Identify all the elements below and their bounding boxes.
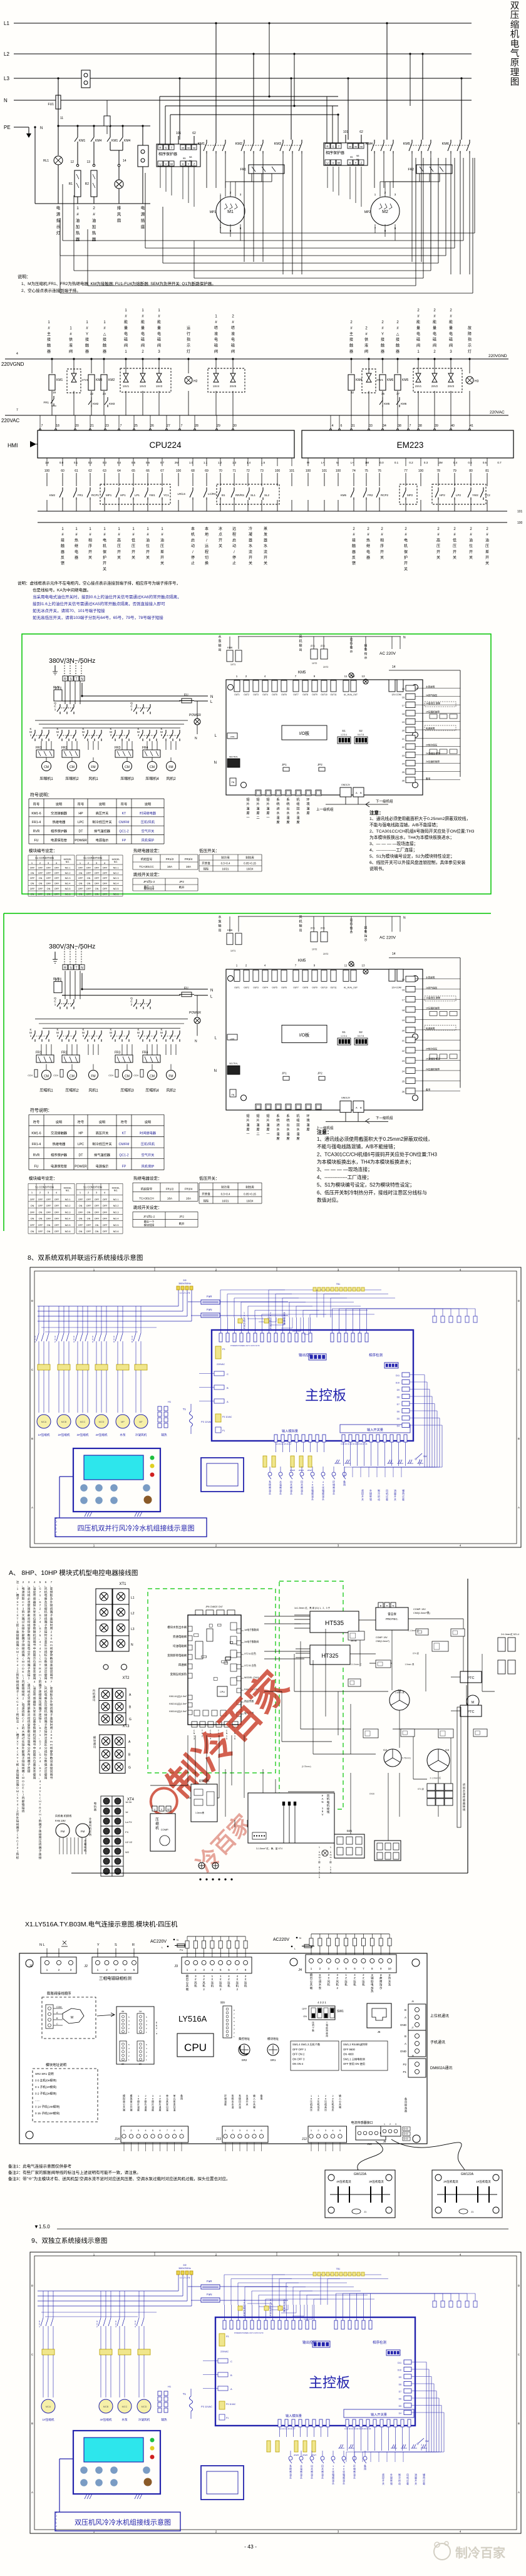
svg-text:4: 4: [16, 352, 18, 356]
svg-text:输出公共端: 输出公共端: [310, 1973, 313, 1990]
svg-text:KT: KT: [122, 812, 126, 816]
svg-text:外接联锁: 外接联锁: [390, 2473, 393, 2485]
svg-text:MP: MP: [121, 1421, 125, 1423]
svg-text:A: A: [230, 2387, 232, 2391]
svg-text:B: B: [360, 791, 362, 794]
svg-text:压缩机3: 压缩机3: [120, 1088, 134, 1093]
svg-text:ON OFF 3: ON OFF 3: [292, 2057, 305, 2060]
svg-text:TB1: TB1: [336, 1283, 341, 1285]
svg-text:KM3: KM3: [274, 142, 281, 146]
svg-text:M: M: [336, 461, 339, 464]
svg-text:100: 100: [306, 469, 311, 473]
svg-text:ON: ON: [87, 1218, 91, 1220]
svg-text:N: N: [214, 1069, 217, 1073]
svg-text:J12: J12: [302, 2137, 307, 2141]
svg-text:1SV3: 1SV3: [156, 385, 163, 388]
svg-text:NO.6: NO.6: [113, 1230, 119, 1233]
svg-text:11: 11: [60, 117, 63, 120]
svg-text:220VAC: 220VAC: [1, 418, 19, 423]
svg-text:RCP1: RCP1: [91, 494, 100, 497]
svg-text:水温感温头: 水温感温头: [300, 2464, 302, 2479]
svg-text:OUT3: OUT3: [253, 987, 259, 989]
svg-text:OFF: OFF: [46, 1211, 51, 1213]
svg-text:29: 29: [217, 424, 220, 428]
svg-text:P3 11VAC: P3 11VAC: [201, 2405, 212, 2408]
svg-text:OFF: OFF: [103, 1211, 108, 1213]
svg-text:OFF: OFF: [30, 1198, 35, 1201]
svg-text:XT2: XT2: [122, 1676, 130, 1680]
svg-text:FR1/2: FR1/2: [166, 858, 174, 861]
svg-text:2YV1: 2YV1: [376, 378, 384, 382]
svg-text:GND: GND: [400, 2050, 407, 2053]
svg-text:HL1: HL1: [43, 159, 49, 163]
svg-text:J5: J5: [411, 2000, 414, 2003]
svg-text:0 15 子机(15#模块): 0 15 子机(15#模块): [35, 2111, 60, 2116]
svg-text:16A: 16A: [167, 865, 173, 868]
svg-text:380V/50Hz: 380V/50Hz: [178, 1282, 191, 1285]
svg-text:NO.6: NO.6: [113, 893, 119, 895]
svg-text:23: 23: [105, 424, 109, 428]
svg-text:FU: FU: [34, 839, 39, 843]
svg-text:制热用: 制热用: [245, 856, 254, 860]
svg-text:压缩机1: 压缩机1: [39, 776, 53, 781]
svg-text:2SV1: 2SV1: [415, 385, 422, 388]
svg-text:220VAC: 220VAC: [220, 2350, 229, 2353]
svg-text:A: A: [31, 2491, 33, 2494]
svg-text:备注1：此电气连接示意图仅供参考: 备注1：此电气连接示意图仅供参考: [8, 2163, 72, 2169]
svg-text:环境感温头: 环境感温头: [353, 2465, 356, 2479]
svg-text:OFF: OFF: [30, 877, 35, 880]
svg-text:OFF: OFF: [95, 1205, 100, 1207]
svg-text:电源保险管: 电源保险管: [51, 1163, 67, 1168]
svg-text:CCH: CCH: [133, 1074, 138, 1077]
svg-text:2#电子膨胀阀: 2#电子膨胀阀: [244, 1640, 259, 1643]
svg-text:21: 21: [90, 424, 94, 428]
svg-text:ON: ON: [31, 1230, 34, 1233]
svg-text:A: A: [405, 2016, 406, 2019]
svg-text:ON: ON: [47, 1224, 51, 1227]
svg-text:机组回水温度: 机组回水温度: [296, 1113, 300, 1141]
svg-text:FaN: FaN: [207, 1308, 212, 1311]
svg-text:2DW5: 2DW5: [294, 2454, 299, 2456]
svg-text:压缩机: 压缩机: [155, 1817, 159, 1831]
svg-text:CM: CM: [44, 766, 49, 769]
svg-text:系统感温头: 系统感温头: [269, 1480, 271, 1495]
svg-text:2#制冷保压: 2#制冷保压: [426, 1047, 438, 1050]
svg-text:27: 27: [167, 424, 170, 428]
svg-text:OUT7: OUT7: [293, 987, 299, 989]
svg-text:2XT2: 2XT2: [323, 666, 328, 668]
svg-text:1#压缩机故障: 1#压缩机故障: [426, 710, 440, 713]
svg-text:0.1: 0.1: [394, 461, 399, 464]
svg-text:D5: D5: [399, 2405, 401, 2407]
svg-text:模块地址说明: 模块地址说明: [46, 2062, 67, 2067]
svg-text:1XT1: 1XT1: [230, 663, 235, 666]
svg-text:TB1: TB1: [336, 2268, 341, 2270]
svg-text:10: 10: [388, 1967, 392, 1970]
svg-text:78: 78: [436, 469, 440, 473]
svg-text:符号: 符号: [121, 1119, 127, 1124]
svg-text:11: 11: [344, 675, 348, 678]
svg-text:98: 98: [189, 155, 192, 158]
svg-text:压缩机3: 压缩机3: [120, 776, 134, 781]
svg-text:NEUTRAL: NEUTRAL: [229, 756, 238, 758]
svg-text:2DW7: 2DW7: [307, 1469, 313, 1472]
svg-text:0.3~0.4: 0.3~0.4: [221, 1193, 230, 1196]
svg-text:POWER: POWER: [75, 839, 87, 843]
svg-text:OFF OFF 1: OFF OFF 1: [292, 2048, 306, 2051]
svg-text:风机2: 风机2: [166, 1088, 176, 1093]
svg-text:XT3: XT3: [122, 1725, 130, 1728]
svg-text:OFF: OFF: [95, 877, 100, 880]
svg-text:模拟量公共端: 模拟量公共端: [123, 2094, 125, 2112]
svg-text:OFF: OFF: [54, 1230, 59, 1233]
svg-text:主控板: 主控板: [309, 2375, 350, 2391]
svg-text:2SV3: 2SV3: [448, 385, 455, 388]
svg-text:单元蒸发出温: 单元蒸发出温: [166, 2094, 168, 2112]
svg-text:ON: ON: [95, 1230, 99, 1233]
svg-text:系统回水温: 系统回水温: [239, 2094, 241, 2109]
svg-text:四压机双并行风冷冷水机组接线示意图: 四压机双并行风冷冷水机组接线示意图: [78, 1524, 195, 1532]
svg-text:B: B: [405, 2035, 406, 2038]
svg-text:OFF: OFF: [78, 866, 83, 869]
svg-text:D9: D9: [399, 2376, 401, 2379]
svg-text:A、 8HP、10HP 模块式机型电控电器接线图: A、 8HP、10HP 模块式机型电控电器接线图: [9, 1569, 138, 1577]
svg-text:20: 20: [75, 424, 79, 428]
svg-text:J6: J6: [378, 2030, 381, 2033]
svg-text:5 6 7 8: 5 6 7 8: [358, 1035, 364, 1037]
svg-text:水泵输出: 水泵输出: [218, 915, 221, 932]
svg-text:XT2 A 红色: XT2 A 红色: [244, 1652, 256, 1655]
svg-text:D8: D8: [397, 1396, 400, 1399]
svg-text:JP1的1-2: JP1的1-2: [143, 880, 155, 884]
svg-text:1#压缩机: 1#压缩机: [38, 1433, 50, 1437]
svg-text:OFF: OFF: [54, 883, 59, 885]
svg-text:ON: ON: [79, 1218, 83, 1220]
svg-text:6、线控开关可以外接风盘连锁控制，具体参见安装: 6、线控开关可以外接风盘连锁控制，具体参见安装: [369, 860, 466, 865]
svg-text:说明: 说明: [56, 1119, 62, 1124]
svg-text:KM5: KM5: [403, 142, 410, 146]
svg-text:35: 35: [381, 392, 385, 395]
svg-text:C3: C3: [445, 1748, 449, 1752]
svg-text:变频压机加热: 变频压机加热: [170, 1672, 187, 1676]
svg-text:101: 101: [176, 132, 182, 135]
svg-text:OFF: OFF: [54, 1211, 59, 1213]
svg-text:POWERN POWERL OUT1 OUT2 OUT3: POWERN POWERL OUT1 OUT2 OUT3: [234, 2332, 264, 2334]
svg-text:95: 95: [350, 155, 353, 158]
svg-text:输出公共端: 输出公共端: [186, 1974, 189, 1992]
svg-text:23: 23: [402, 754, 405, 757]
svg-text:M: M: [71, 2016, 73, 2020]
svg-text:380V/50Hz: 380V/50Hz: [178, 2267, 191, 2270]
svg-text:FR1/2: FR1/2: [166, 1188, 174, 1191]
svg-text:HP2: HP2: [440, 494, 445, 497]
svg-text:OUT9: OUT9: [312, 693, 317, 696]
svg-text:100: 100: [336, 469, 341, 473]
svg-text:21: 21: [402, 1040, 405, 1042]
svg-text:ON: ON: [31, 1218, 34, 1220]
svg-text:不能与强电线路混铺，A/B不能接错；: 不能与强电线路混铺，A/B不能接错；: [369, 822, 440, 828]
svg-text:SW1.4 SW1.3 压机个数: SW1.4 SW1.3 压机个数: [292, 2042, 321, 2047]
svg-text:N: N: [210, 695, 213, 699]
svg-text:CM: CM: [70, 1074, 75, 1078]
svg-text:KM5: KM5: [402, 378, 409, 382]
svg-text:2#制冷保压: 2#制冷保压: [426, 744, 438, 747]
svg-text:冷凝风机: 冷凝风机: [135, 1433, 147, 1437]
svg-text:24: 24: [103, 392, 106, 395]
svg-text:N: N: [195, 737, 197, 740]
svg-text:16/21: 16/21: [222, 868, 230, 871]
svg-text:NO.5: NO.5: [65, 888, 71, 890]
svg-text:说明: 说明: [56, 801, 62, 806]
svg-text:低压开关：: 低压开关：: [199, 1175, 220, 1181]
svg-text:KM1 A1(吕)1.5m²: KM1 A1(吕)1.5m²: [169, 1695, 187, 1698]
svg-text:OFF: OFF: [46, 1205, 51, 1207]
svg-text:如无高低压开关，请将103端子分别与64号，65号，79号，: 如无高低压开关，请将103端子分别与64号，65号，79号，78号端子短接: [33, 615, 163, 620]
svg-text:A: A: [227, 1400, 229, 1403]
svg-text:流量开关: 流量开关: [394, 1489, 396, 1501]
svg-text:FU: FU: [34, 1165, 39, 1168]
svg-text:JP1: JP1: [282, 1072, 287, 1075]
svg-text:水泵故障: 水泵故障: [426, 685, 435, 688]
svg-text:双压机风冷冷水机组接线示意图: 双压机风冷冷水机组接线示意图: [75, 2518, 171, 2527]
svg-text:NO.3: NO.3: [65, 877, 71, 880]
svg-text:OUT7: OUT7: [293, 693, 299, 696]
svg-text:CM: CM: [70, 766, 75, 769]
svg-text:NO.3: NO.3: [65, 1211, 71, 1213]
svg-text:定频压机: 定频压机: [199, 1779, 210, 1783]
svg-text:LR/LS: LR/LS: [177, 492, 185, 496]
svg-text:T: T: [338, 145, 340, 148]
svg-text:水温感温头: 水温感温头: [279, 1480, 282, 1495]
svg-text:FR2: FR2: [61, 746, 68, 750]
svg-text:OFF: OFF: [54, 1224, 59, 1227]
svg-text:62: 62: [192, 132, 196, 135]
svg-text:接到I1.6上的油位开关信号需通过KA5的常开触点隔离，否则: 接到I1.6上的油位开关信号需通过KA5的常开触点隔离，否则直接接入即可: [33, 601, 165, 606]
svg-text:101: 101: [322, 469, 327, 473]
svg-text:输入开关量: 输入开关量: [367, 1427, 383, 1432]
svg-text:KM3: KM3: [109, 402, 115, 405]
svg-text:相序检测: 相序检测: [373, 2340, 387, 2345]
svg-text:KM5: KM5: [298, 959, 306, 963]
svg-text:1XT2: 1XT2: [312, 948, 317, 951]
svg-text:64: 64: [117, 469, 121, 473]
svg-text:电源保险管: 电源保险管: [51, 838, 67, 843]
svg-text:机组回水温度: 机组回水温度: [296, 797, 300, 824]
svg-text:D7: D7: [397, 1403, 400, 1406]
svg-text:RVR: RVR: [33, 830, 40, 834]
svg-text:I/O板: I/O板: [299, 1032, 309, 1038]
svg-text:L3: L3: [4, 76, 9, 81]
svg-text:220VGND: 220VGND: [488, 354, 507, 358]
svg-text:MP2: MP2: [407, 494, 413, 497]
svg-text:N: N: [214, 761, 217, 765]
svg-text:B: B: [518, 1437, 520, 1440]
svg-text:OUT8: OUT8: [302, 987, 308, 989]
svg-text:外接联锁: 外接联锁: [369, 1489, 372, 1501]
svg-text:1.0mm²黑: 1.0mm²黑: [195, 1812, 205, 1814]
svg-text:※辅助电加热: ※辅助电加热: [371, 1973, 374, 1993]
svg-text:95: 95: [182, 147, 184, 150]
svg-text:R: R: [64, 966, 66, 970]
svg-text:上一级机组: 上一级机组: [316, 807, 334, 812]
svg-text:旁通电磁阀: 旁通电磁阀: [173, 1634, 187, 1639]
svg-text:24: 24: [402, 1070, 405, 1072]
svg-text:OFF: OFF: [54, 1218, 59, 1220]
svg-text:制冷低压开关: 制冷低压开关: [92, 819, 111, 824]
svg-text:- 43 -: - 43 -: [244, 2543, 257, 2550]
svg-text:1、通讯线必须使用截面积大于0.25mm2屏蔽双绞线，: 1、通讯线必须使用截面积大于0.25mm2屏蔽双绞线，: [317, 1136, 433, 1142]
svg-text:67: 67: [160, 469, 164, 473]
svg-text:PTC: PTC: [468, 1676, 475, 1680]
svg-text:FR3/4: FR3/4: [185, 858, 193, 861]
svg-text:1#压缩机故障: 1#压缩机故障: [426, 1006, 440, 1009]
svg-text:OUT2: OUT2: [244, 693, 249, 696]
svg-text:KM1: KM1: [79, 139, 86, 143]
svg-text:0.0: 0.0: [59, 461, 64, 464]
svg-text:开关值: 开关值: [202, 861, 210, 866]
svg-text:R2: R2: [85, 182, 90, 186]
svg-text:CN16: CN16: [369, 1792, 374, 1795]
svg-text:315: 315: [421, 2444, 422, 2451]
svg-text:380V/3N~/50Hz: 380V/3N~/50Hz: [49, 943, 95, 950]
svg-text:TCA301CH: TCA301CH: [139, 1197, 154, 1200]
svg-text:FR2: FR2: [61, 1051, 68, 1055]
svg-text:1#: 1#: [139, 2010, 142, 2013]
svg-text:▼1.5.0: ▼1.5.0: [34, 2224, 50, 2230]
svg-text:KM6: KM6: [227, 646, 233, 649]
svg-text:NO.2: NO.2: [65, 1205, 71, 1207]
svg-text:16A: 16A: [167, 1197, 173, 1200]
svg-text:OFF: OFF: [46, 866, 51, 869]
svg-text:V: V: [161, 1808, 163, 1811]
svg-text:0.3~0.4: 0.3~0.4: [221, 862, 230, 865]
svg-text:ON: ON: [79, 1205, 83, 1207]
svg-text:2XT2: 2XT2: [323, 953, 328, 955]
svg-text:1.2: 1.2: [218, 461, 222, 464]
svg-text:CM: CM: [150, 1074, 155, 1078]
svg-text:KM4: KM4: [124, 139, 131, 143]
svg-text:NO.4: NO.4: [113, 1218, 119, 1220]
svg-text:S: S: [332, 145, 334, 148]
svg-text:YC1: YC1: [163, 494, 169, 497]
svg-text:DZ1: DZ1: [347, 1829, 353, 1832]
svg-text:电源指示: 电源指示: [96, 1163, 109, 1168]
svg-text:FM: FM: [91, 1074, 95, 1078]
svg-text:1: 1: [384, 2123, 385, 2126]
svg-text:1#高低压 报警: 1#高低压 报警: [426, 996, 440, 999]
svg-text:2、TCA301CC/CH机组6号拨码开关应处于ON位置;T: 2、TCA301CC/CH机组6号拨码开关应处于ON位置;TH3: [369, 828, 475, 834]
svg-text:XT4 绿: XT4 绿: [413, 1652, 420, 1655]
svg-text:ON: ON: [31, 893, 34, 895]
svg-text:水泵: 水泵: [120, 1433, 126, 1436]
svg-text:说明：: 说明：: [18, 274, 31, 279]
svg-text:OFF: OFF: [38, 1198, 43, 1201]
svg-text:高压开关: 高压开关: [96, 811, 109, 816]
svg-text:V: V: [165, 163, 167, 166]
svg-text:LPC: LPC: [78, 821, 84, 824]
svg-text:NO.6: NO.6: [65, 1230, 71, 1233]
svg-text:MCD: MCD: [99, 1421, 105, 1423]
svg-text:U: U: [154, 1808, 156, 1811]
svg-text:2SV2: 2SV2: [431, 385, 438, 388]
svg-text:S1: S1: [342, 729, 346, 732]
svg-text:集控地址: 集控地址: [239, 2037, 250, 2041]
svg-text:OFF: OFF: [95, 866, 100, 869]
svg-text:FR1: FR1: [43, 401, 49, 404]
svg-text:L1: L1: [4, 21, 9, 26]
svg-text:出水感温头: 出水感温头: [311, 2464, 313, 2479]
svg-text:31: 31: [351, 424, 355, 428]
svg-text:NO.3: NO.3: [113, 877, 119, 880]
svg-text:L+: L+: [321, 461, 325, 464]
svg-text:模块短接: 模块短接: [144, 1223, 155, 1227]
svg-text:P3 11VAC: P3 11VAC: [226, 2403, 236, 2406]
svg-text:CM/FM: CM/FM: [119, 1143, 130, 1146]
svg-text:MCA: MCA: [46, 2406, 51, 2408]
svg-text:OFF: OFF: [95, 1198, 100, 1201]
svg-text:4、--------------工厂连接；: 4、--------------工厂连接；: [317, 1174, 371, 1180]
svg-text:B: B: [518, 2422, 520, 2425]
svg-text:OFF: OFF: [103, 888, 108, 890]
svg-text:OUT10: OUT10: [321, 693, 327, 696]
svg-text:NO.6: NO.6: [65, 893, 71, 895]
svg-text:J1: J1: [29, 1965, 33, 1968]
svg-text:220VAC: 220VAC: [490, 410, 505, 415]
svg-text:FR3: FR3: [115, 746, 121, 750]
svg-text:水流开关: 水流开关: [246, 2094, 249, 2106]
svg-text:N: N: [131, 1643, 133, 1647]
svg-text:1.0: 1.0: [189, 461, 193, 464]
svg-text:FaR: FaR: [207, 1295, 212, 1298]
svg-text:KM1: KM1: [56, 378, 63, 382]
svg-text:P3: P3: [222, 1348, 225, 1351]
svg-text:说明：虚线框表示元件不在电柜内，空心接点表示连接到端子排，相: 说明：虚线框表示元件不在电柜内，空心接点表示连接到端子排，相应序号为端子排序号，: [18, 580, 180, 586]
svg-text:N L: N L: [39, 1943, 45, 1947]
svg-text:OUT10: OUT10: [321, 987, 327, 989]
svg-text:OFF: OFF: [38, 893, 43, 895]
svg-text:G: G: [128, 1766, 131, 1770]
svg-text:系统出水温度: 系统出水温度: [286, 797, 290, 824]
svg-text:KM5: KM5: [341, 494, 347, 497]
svg-text:OFF: OFF: [103, 877, 108, 880]
svg-text:相序保护器: 相序保护器: [326, 150, 344, 155]
svg-text:16: 16: [402, 696, 405, 699]
svg-text:101: 101: [289, 469, 295, 473]
svg-text:也是线标号。KA为中间继电器。: 也是线标号。KA为中间继电器。: [33, 587, 91, 593]
svg-text:KM2: KM2: [93, 402, 99, 405]
svg-text:J8: J8: [411, 2055, 414, 2057]
svg-text:72: 72: [246, 469, 250, 473]
svg-text:FN: FN: [232, 781, 235, 784]
svg-text:KM3: KM3: [96, 378, 103, 382]
svg-text:2#压机电流: 2#压机电流: [443, 2179, 458, 2184]
svg-text:NO.1: NO.1: [113, 866, 119, 869]
svg-text:74: 74: [352, 469, 356, 473]
svg-text:JP2: JP2: [179, 880, 184, 883]
svg-text:交流接触器: 交流接触器: [51, 811, 68, 816]
svg-text:FR1: FR1: [36, 746, 42, 750]
svg-text:66: 66: [146, 469, 150, 473]
svg-text:OFF: OFF: [86, 1198, 91, 1201]
svg-text:4: 4: [332, 424, 334, 428]
svg-text:RR/RS: RR/RS: [235, 494, 244, 497]
svg-text:OFF: OFF: [46, 883, 51, 885]
svg-text:CN5(1.0mm²): CN5(1.0mm²): [376, 1640, 389, 1643]
svg-text:79: 79: [453, 469, 456, 473]
svg-text:62: 62: [359, 130, 363, 134]
svg-text:......: ......: [35, 2099, 40, 2102]
